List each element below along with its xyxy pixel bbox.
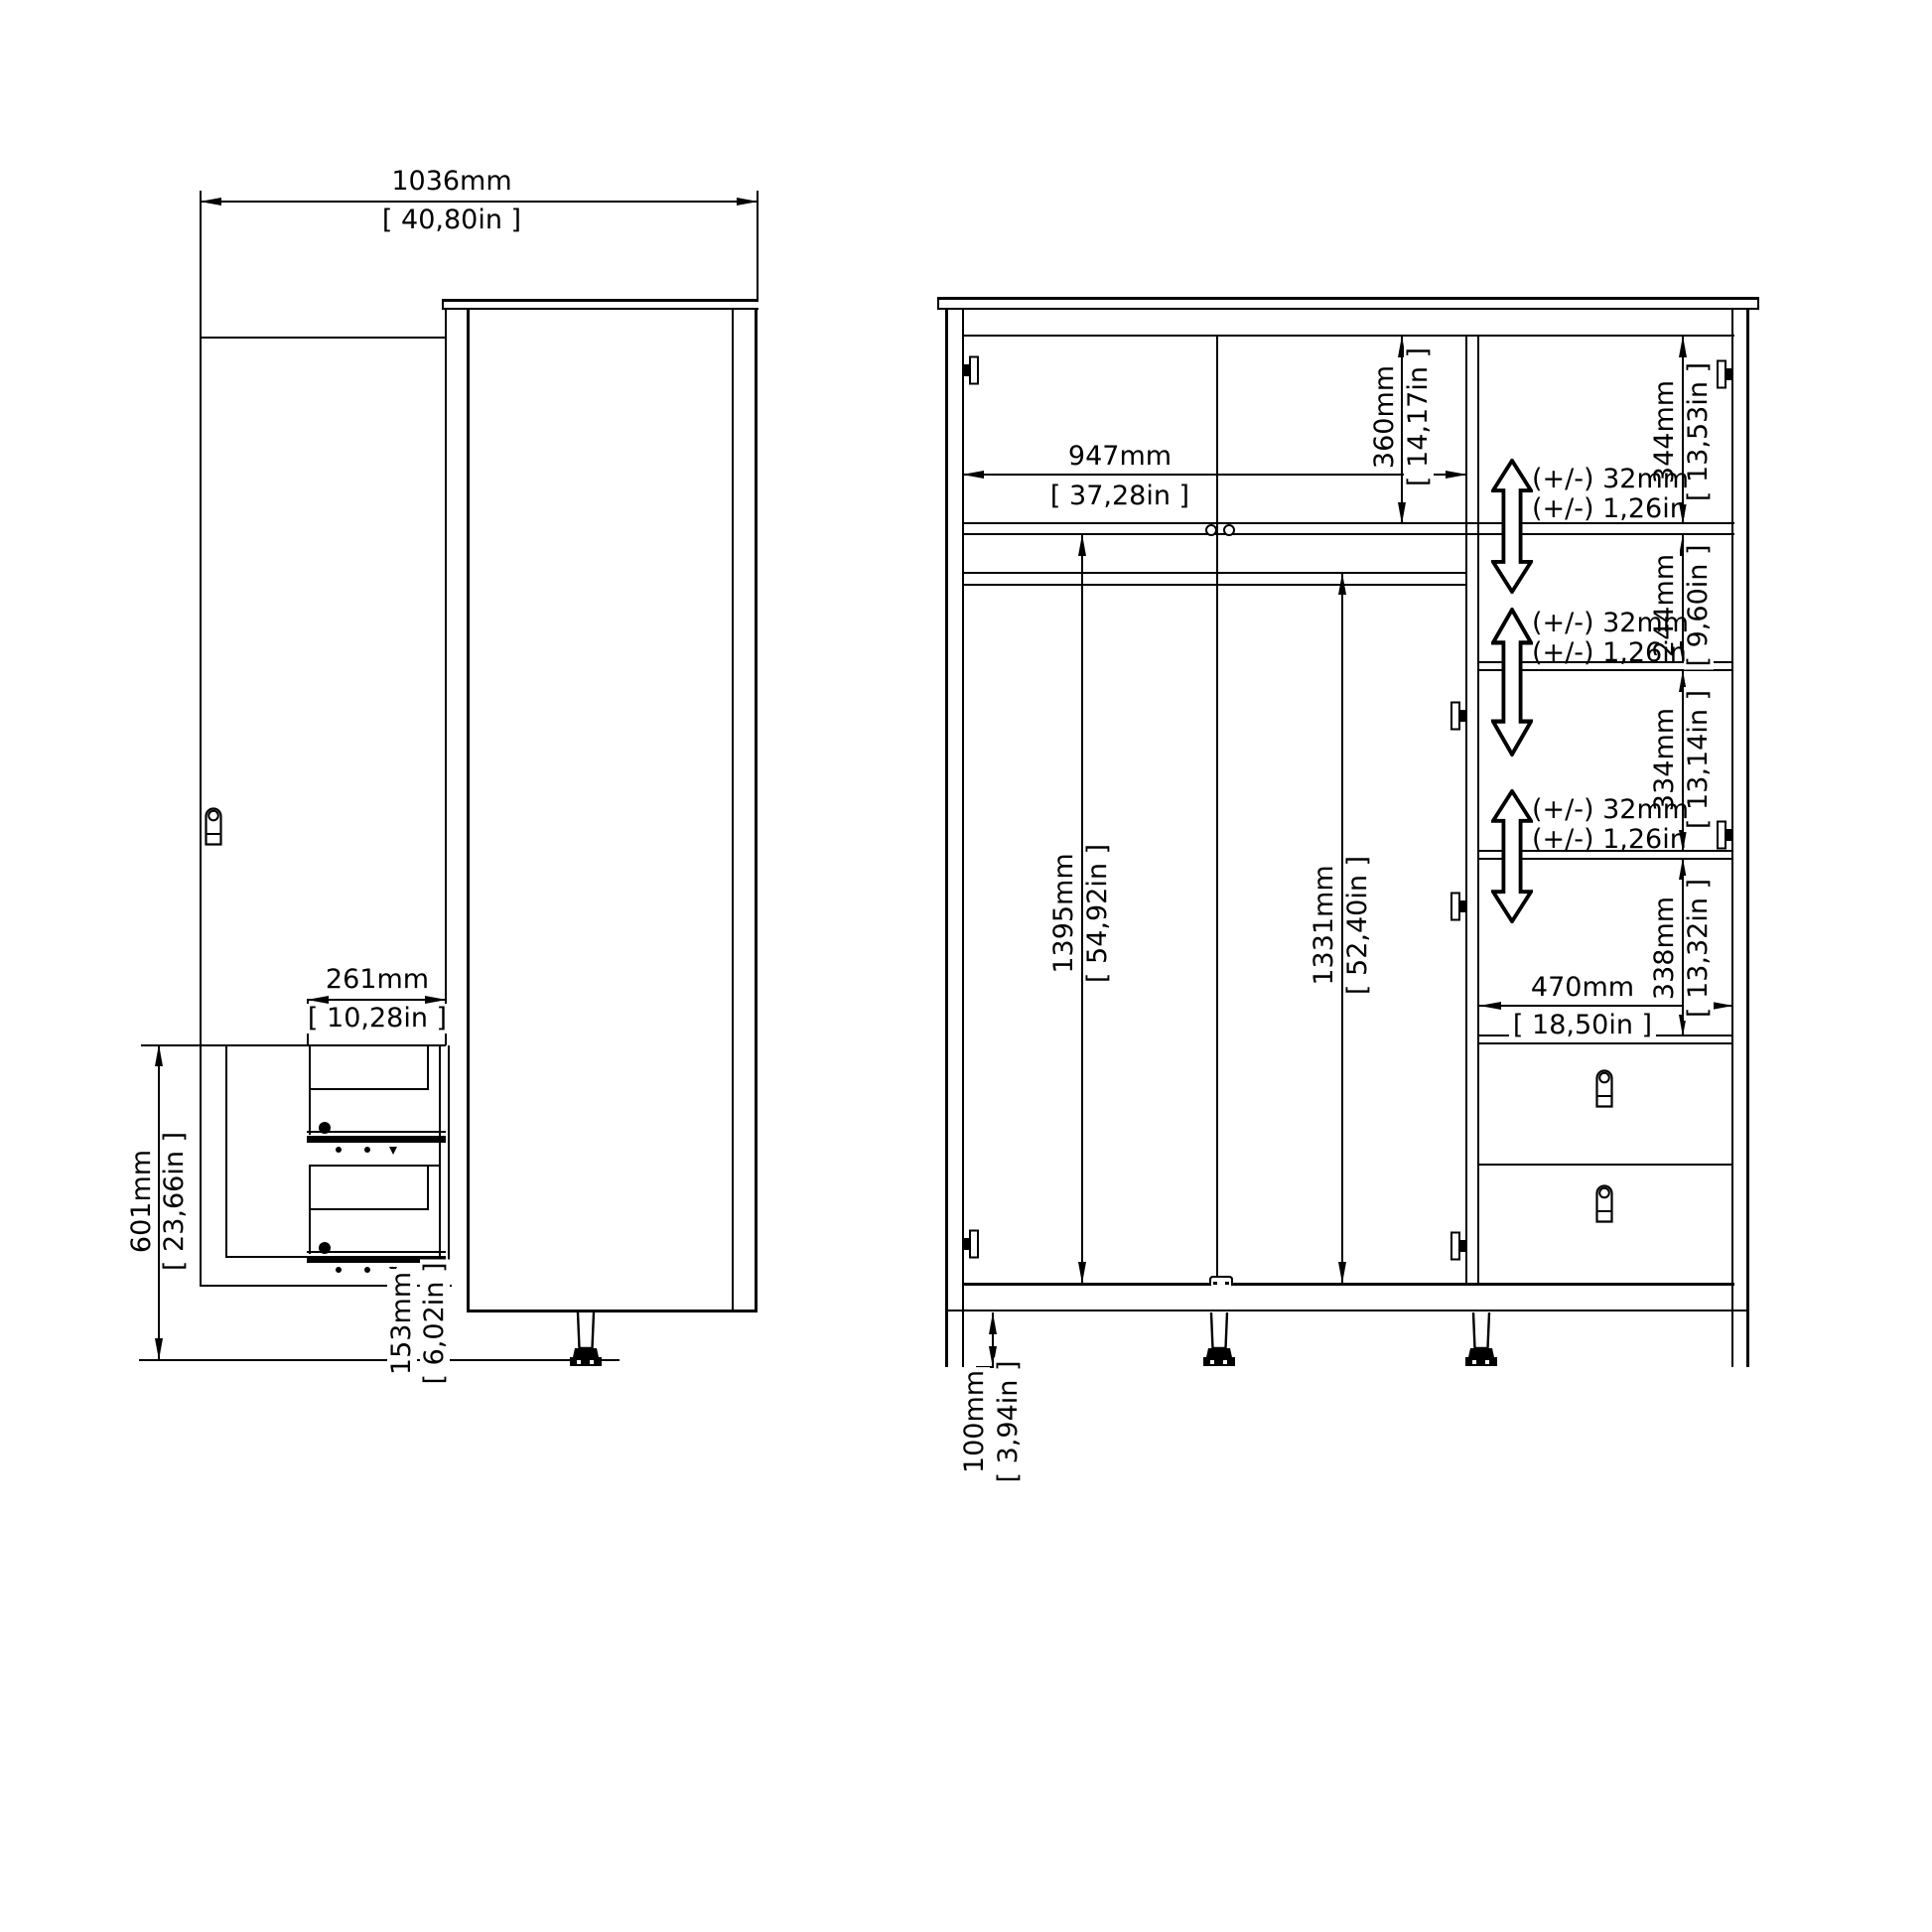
sv-drawer1-screw2-icon bbox=[364, 1147, 370, 1153]
sv-top-board-top bbox=[442, 299, 759, 302]
sv-top-board-bottom bbox=[442, 308, 759, 310]
sv-drawer1-runner-bar bbox=[307, 1136, 446, 1143]
fv-adjust-note-1-in: (+/-) 1,26in bbox=[1532, 494, 1689, 524]
fv-dim-1395-arrow-up-icon bbox=[1078, 534, 1086, 556]
fv-hinge-right-top-icon bbox=[1717, 359, 1732, 389]
sv-dim-width-arrow-right-icon bbox=[737, 198, 759, 206]
fv-shelf-pin2-icon bbox=[1223, 524, 1235, 536]
sv-door-front-line bbox=[200, 191, 202, 1286]
fv-adjust-note-1: (+/-) 32mm (+/-) 1,26in bbox=[1532, 465, 1689, 524]
fv-hinge-right-mid-icon bbox=[1717, 820, 1732, 850]
fv-dim-1395-arrow-down-icon bbox=[1078, 1262, 1086, 1284]
fv-dim-470-arrow-left-icon bbox=[1479, 1002, 1501, 1010]
fv-adjust-note-2-mm: (+/-) 32mm bbox=[1532, 609, 1689, 638]
sv-dim-module-arrow-up-icon bbox=[155, 1044, 163, 1066]
fv-dim-1395-mm: 1395mm bbox=[1049, 850, 1079, 976]
sv-dim-base-in: [ 6,02in ] bbox=[420, 1260, 450, 1388]
sv-dim-module-mm: 601mm bbox=[127, 1147, 157, 1256]
sv-dim-width-mm: 1036mm bbox=[387, 167, 515, 197]
fv-interior-top bbox=[962, 335, 1734, 337]
sv-drawer1-back bbox=[309, 1045, 311, 1135]
fv-hinge-divider-3-icon bbox=[1450, 1231, 1466, 1261]
fv-dim-interior-arrow-left-icon bbox=[962, 471, 984, 479]
sv-dim-base-mm: 153mm bbox=[387, 1269, 417, 1378]
sv-drawer2-top bbox=[309, 1165, 440, 1167]
fv-dim-1331-arrow-up-icon bbox=[1338, 573, 1346, 595]
fv-adjust-arrow-1-icon bbox=[1491, 459, 1533, 594]
sv-front-panel-outer bbox=[467, 309, 470, 1312]
fv-top-board-top bbox=[937, 297, 1759, 300]
fv-top-board-bottom bbox=[937, 308, 1759, 310]
fv-drawer2-handle-icon bbox=[1594, 1182, 1614, 1224]
sv-drawer2-inner-v bbox=[427, 1165, 429, 1210]
fv-dim-470-arrow-right-icon bbox=[1712, 1002, 1733, 1010]
fv-dim-top-arrow-down-icon bbox=[1398, 502, 1406, 524]
fv-hinge-divider-2-icon bbox=[1450, 892, 1466, 921]
fv-hinge-left-top-icon bbox=[963, 355, 979, 385]
fv-dim-338-in: [ 13,32in ] bbox=[1684, 876, 1714, 1021]
fv-adjust-arrow-2-icon bbox=[1491, 608, 1533, 757]
fv-dim-interior-in: [ 37,28in ] bbox=[1046, 482, 1193, 511]
fv-dim-interior-mm: 947mm bbox=[1064, 442, 1175, 472]
sv-drawer2-screw1-icon bbox=[336, 1267, 342, 1273]
sv-top-board-front-edge bbox=[442, 299, 444, 310]
fv-adjust-note-1-mm: (+/-) 32mm bbox=[1532, 465, 1689, 494]
fv-left-wall-inner bbox=[962, 309, 964, 1367]
fv-dim-interior-arrow-right-icon bbox=[1446, 471, 1467, 479]
fv-dim-338-mm: 338mm bbox=[1650, 894, 1680, 1003]
fv-top-board-edge-right bbox=[1757, 297, 1759, 310]
sv-back-panel-outer bbox=[755, 309, 758, 1312]
sv-drawer2-inner-h bbox=[309, 1208, 429, 1210]
fv-adjust-arrow-3-icon bbox=[1491, 789, 1533, 923]
sv-drawer-module-top bbox=[141, 1044, 446, 1046]
fv-top-board-edge-left bbox=[937, 297, 939, 310]
fv-foot-right-icon bbox=[1459, 1312, 1503, 1370]
fv-door-divider bbox=[1216, 336, 1218, 1284]
fv-dim-1331-mm: 1331mm bbox=[1310, 862, 1339, 988]
fv-dim-470-in: [ 18,50in ] bbox=[1509, 1011, 1656, 1040]
fv-hanging-rail-bottom bbox=[962, 584, 1467, 586]
sv-dim-width-line bbox=[200, 201, 759, 203]
fv-foot-left-icon bbox=[1197, 1312, 1241, 1370]
sv-floor-line bbox=[139, 1359, 620, 1361]
fv-hinge-divider-1-icon bbox=[1450, 701, 1466, 731]
fv-dim-1395-in: [ 54,92in ] bbox=[1083, 841, 1113, 986]
fv-dim-344-arrow-up-icon bbox=[1679, 336, 1687, 357]
sv-dim-module-arrow-down-icon bbox=[155, 1338, 163, 1360]
fv-right-wall-outer bbox=[1746, 309, 1749, 1367]
sv-dim-drawer-mm: 261mm bbox=[322, 965, 433, 995]
sv-door-handle-icon bbox=[204, 805, 223, 847]
fv-adjust-note-3: (+/-) 32mm (+/-) 1,26in bbox=[1532, 795, 1689, 855]
sv-drawer-module-inner-v bbox=[225, 1045, 227, 1258]
sv-bottom-board bbox=[467, 1310, 758, 1312]
fv-dim-interior-line bbox=[962, 474, 1467, 476]
wardrobe-technical-drawing: 1036mm [ 40,80in ] 601mm [ 23,66in ] 261… bbox=[0, 0, 1932, 1932]
fv-shelf4-bottom bbox=[1477, 1042, 1733, 1044]
fv-drawer-divider bbox=[1477, 1164, 1733, 1166]
sv-front-panel-line bbox=[445, 309, 447, 1045]
sv-drawer1-screw1-icon bbox=[336, 1147, 342, 1153]
sv-drawer2-roller-icon bbox=[319, 1242, 331, 1254]
sv-drawer1-stop-icon bbox=[389, 1147, 397, 1155]
fv-drawer1-handle-icon bbox=[1594, 1067, 1614, 1109]
sv-drawer1-inner-h bbox=[309, 1088, 429, 1090]
fv-dim-100-in: [ 3,94in ] bbox=[994, 1358, 1024, 1486]
sv-back-panel-line bbox=[732, 309, 734, 1312]
fv-adjust-note-3-mm: (+/-) 32mm bbox=[1532, 795, 1689, 825]
fv-dim-470-mm: 470mm bbox=[1527, 973, 1638, 1003]
fv-dim-top-mm: 360mm bbox=[1370, 362, 1400, 472]
fv-door-guide-icon bbox=[1208, 1276, 1234, 1287]
fv-adjust-note-3-in: (+/-) 1,26in bbox=[1532, 825, 1689, 855]
sv-dim-drawer-in: [ 10,28in ] bbox=[304, 1004, 451, 1034]
fv-dim-100-arrow-up-icon bbox=[989, 1312, 997, 1334]
sv-right-extension-line bbox=[757, 191, 759, 300]
sv-drawer-front-b bbox=[448, 1045, 450, 1286]
fv-shelf-pin1-icon bbox=[1205, 524, 1217, 536]
fv-dim-1331-in: [ 52,40in ] bbox=[1343, 853, 1373, 998]
sv-drawer1-inner-v bbox=[427, 1045, 429, 1089]
fv-plinth-bottom bbox=[945, 1310, 1749, 1311]
fv-dim-1331-arrow-down-icon bbox=[1338, 1262, 1346, 1284]
fv-hinge-left-bottom-icon bbox=[963, 1229, 979, 1259]
fv-hanging-rail-top bbox=[962, 572, 1467, 574]
sv-dim-width-in: [ 40,80in ] bbox=[378, 206, 525, 235]
sv-door-top-line bbox=[200, 337, 446, 339]
sv-drawer2-screw2-icon bbox=[364, 1267, 370, 1273]
sv-dim-module-in: [ 23,66in ] bbox=[160, 1129, 190, 1274]
fv-adjust-note-2: (+/-) 32mm (+/-) 1,26in bbox=[1532, 609, 1689, 668]
fv-left-wall-outer bbox=[945, 309, 948, 1367]
fv-right-divider-b bbox=[1477, 336, 1479, 1286]
fv-adjust-note-2-in: (+/-) 1,26in bbox=[1532, 638, 1689, 668]
sv-foot-icon bbox=[564, 1312, 608, 1370]
fv-dim-100-mm: 100mm bbox=[960, 1367, 990, 1476]
sv-dim-width-arrow-left-icon bbox=[200, 198, 221, 206]
fv-dim-top-in: [ 14,17in ] bbox=[1404, 345, 1434, 489]
sv-drawer1-roller-icon bbox=[319, 1122, 331, 1134]
